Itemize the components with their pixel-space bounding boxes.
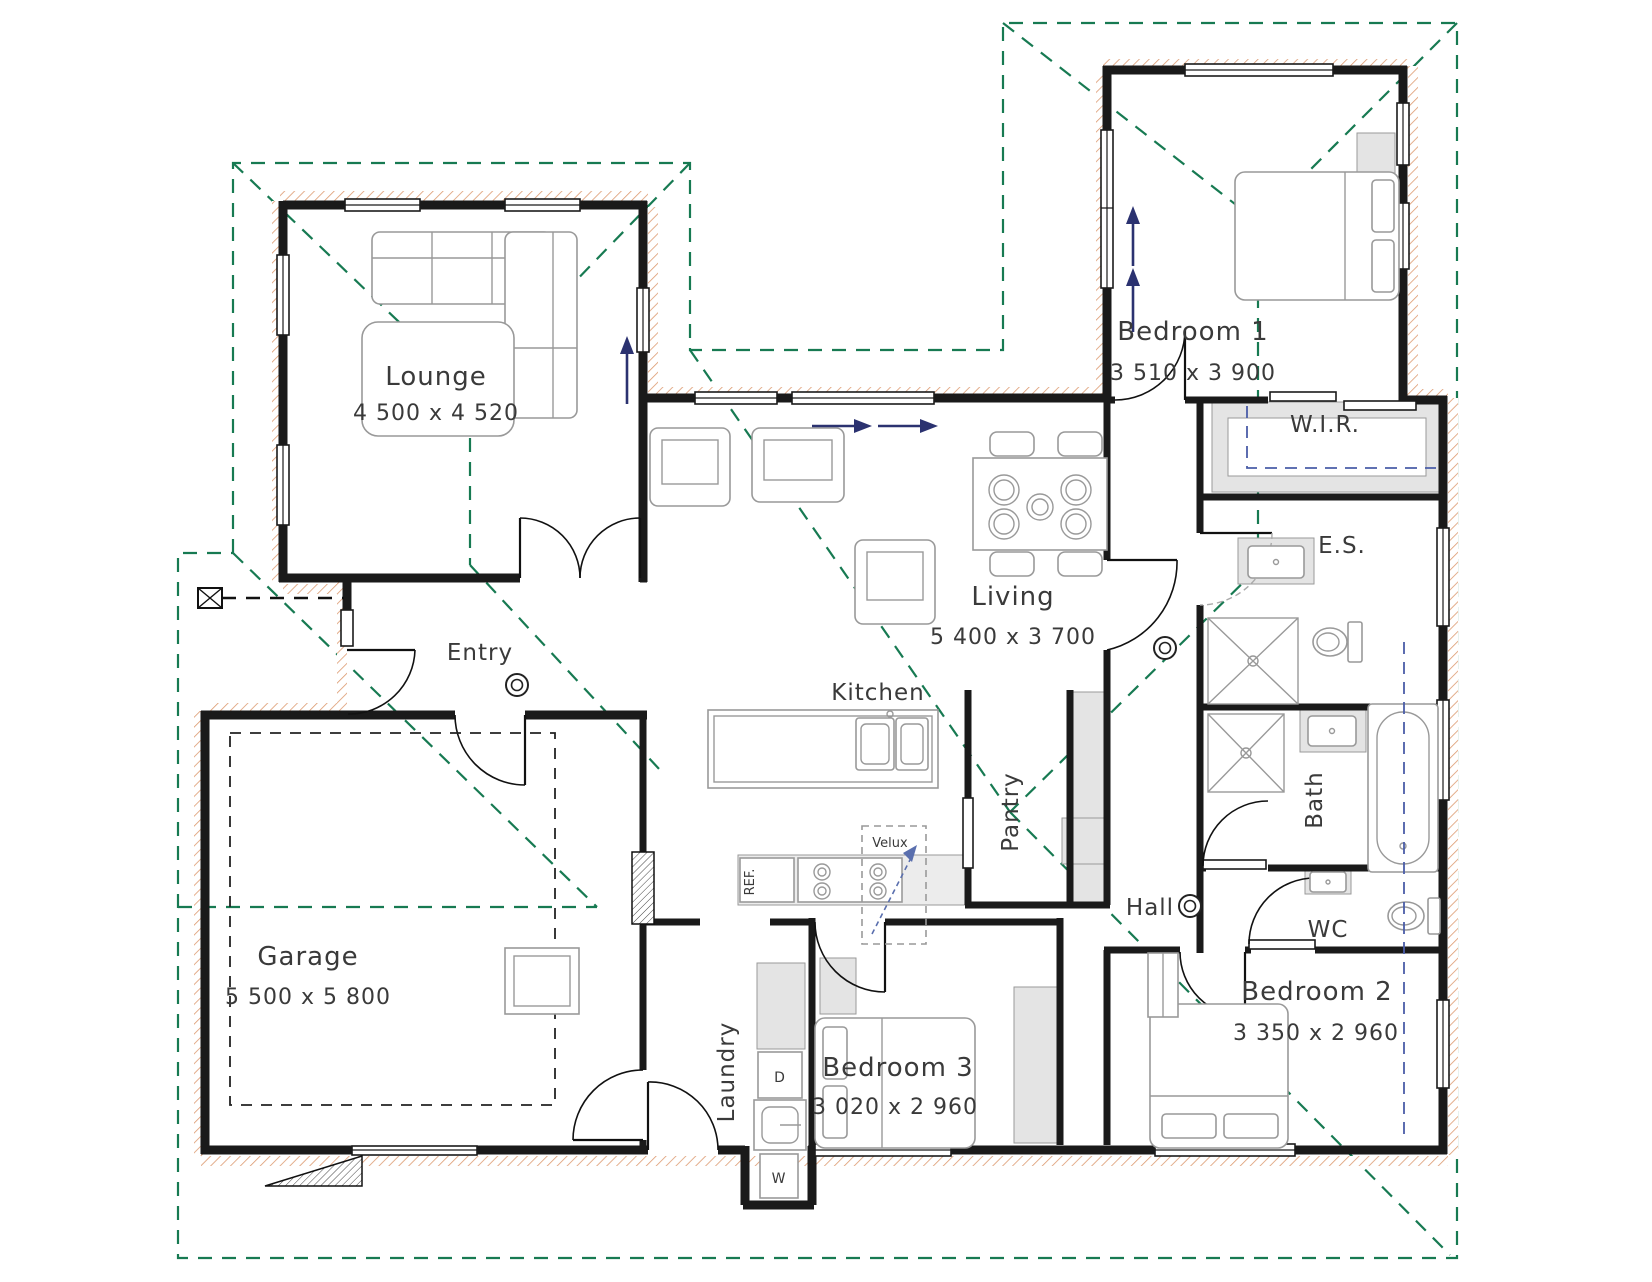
kitchen-island: [708, 710, 938, 788]
smoke-detector-hall: [1179, 895, 1201, 917]
linen-shelving: [1072, 692, 1105, 903]
washer-label: W: [772, 1171, 787, 1187]
floor-plan-svg: REF.: [0, 0, 1652, 1282]
bedroom2-robe: [1148, 953, 1178, 1017]
garage-car-space: [230, 733, 555, 1105]
kitchen-stove: [798, 858, 902, 902]
wc-label: WC: [1308, 917, 1349, 943]
fridge-label: REF.: [743, 869, 758, 896]
es-label: E.S.: [1318, 533, 1366, 559]
lounge-double-doors: [520, 518, 640, 578]
pantry-door-panel: [963, 798, 973, 868]
bedroom3-robe: [1014, 987, 1058, 1143]
laundry-label: Laundry: [714, 1022, 740, 1123]
bedroom1-label: Bedroom 1: [1117, 317, 1268, 347]
laundry-external-door: [648, 1082, 718, 1150]
living-label: Living: [971, 582, 1054, 612]
fridge: REF.: [740, 858, 794, 902]
bath-shower: [1208, 714, 1284, 792]
living-dims: 5 400 x 3 700: [930, 625, 1096, 650]
wir-slider-1: [1270, 392, 1336, 401]
bedroom2-label: Bedroom 2: [1241, 977, 1392, 1007]
bedroom3-label: Bedroom 3: [822, 1053, 973, 1083]
garage-entry-door: [455, 715, 525, 785]
bedroom1-bed: [1235, 172, 1399, 300]
es-toilet: [1313, 622, 1362, 662]
living-armchairs: [650, 428, 935, 624]
wir-label: W.I.R.: [1290, 412, 1360, 438]
bedroom3-dims: 3 020 x 2 960: [812, 1095, 978, 1120]
wc-basin: [1310, 872, 1346, 892]
dryer-label: D: [774, 1070, 786, 1086]
bathtub: [1368, 704, 1438, 872]
dining-table: [973, 432, 1107, 576]
smoke-detector-living: [1154, 637, 1176, 659]
floor-plan-page: REF.: [0, 0, 1652, 1282]
garage-step: [632, 852, 654, 924]
bath-door: [1203, 801, 1268, 869]
bedroom1-dims: 3 510 x 3 900: [1110, 361, 1276, 386]
lounge-label: Lounge: [385, 362, 486, 392]
wir-slider-2: [1344, 401, 1416, 410]
bedroom3-side: [820, 958, 856, 1014]
velux-label: Velux: [872, 836, 908, 851]
wc-toilet: [1388, 898, 1440, 934]
laundry-appliances: D W: [754, 1052, 806, 1198]
front-door: [347, 650, 415, 714]
bath-label: Bath: [1302, 771, 1328, 828]
bath-basin: [1308, 716, 1356, 746]
kitchen-label: Kitchen: [831, 680, 924, 706]
garage-dims: 5 500 x 5 800: [225, 985, 391, 1010]
laundry-bench: [757, 963, 805, 1049]
bedroom3-bed: [815, 1018, 975, 1148]
bedroom2-dims: 3 350 x 2 960: [1233, 1021, 1399, 1046]
pantry-label: Pantry: [998, 772, 1024, 852]
entry-label: Entry: [447, 640, 513, 666]
entry-sidelight: [341, 610, 353, 646]
garage-side-door: [573, 1070, 643, 1140]
es-basin: [1248, 546, 1304, 578]
hall-label: Hall: [1126, 895, 1174, 921]
lounge-dims: 4 500 x 4 520: [353, 401, 519, 426]
es-shower: [1208, 618, 1298, 704]
garage-label: Garage: [257, 942, 358, 972]
smoke-detector-entry: [506, 674, 528, 696]
